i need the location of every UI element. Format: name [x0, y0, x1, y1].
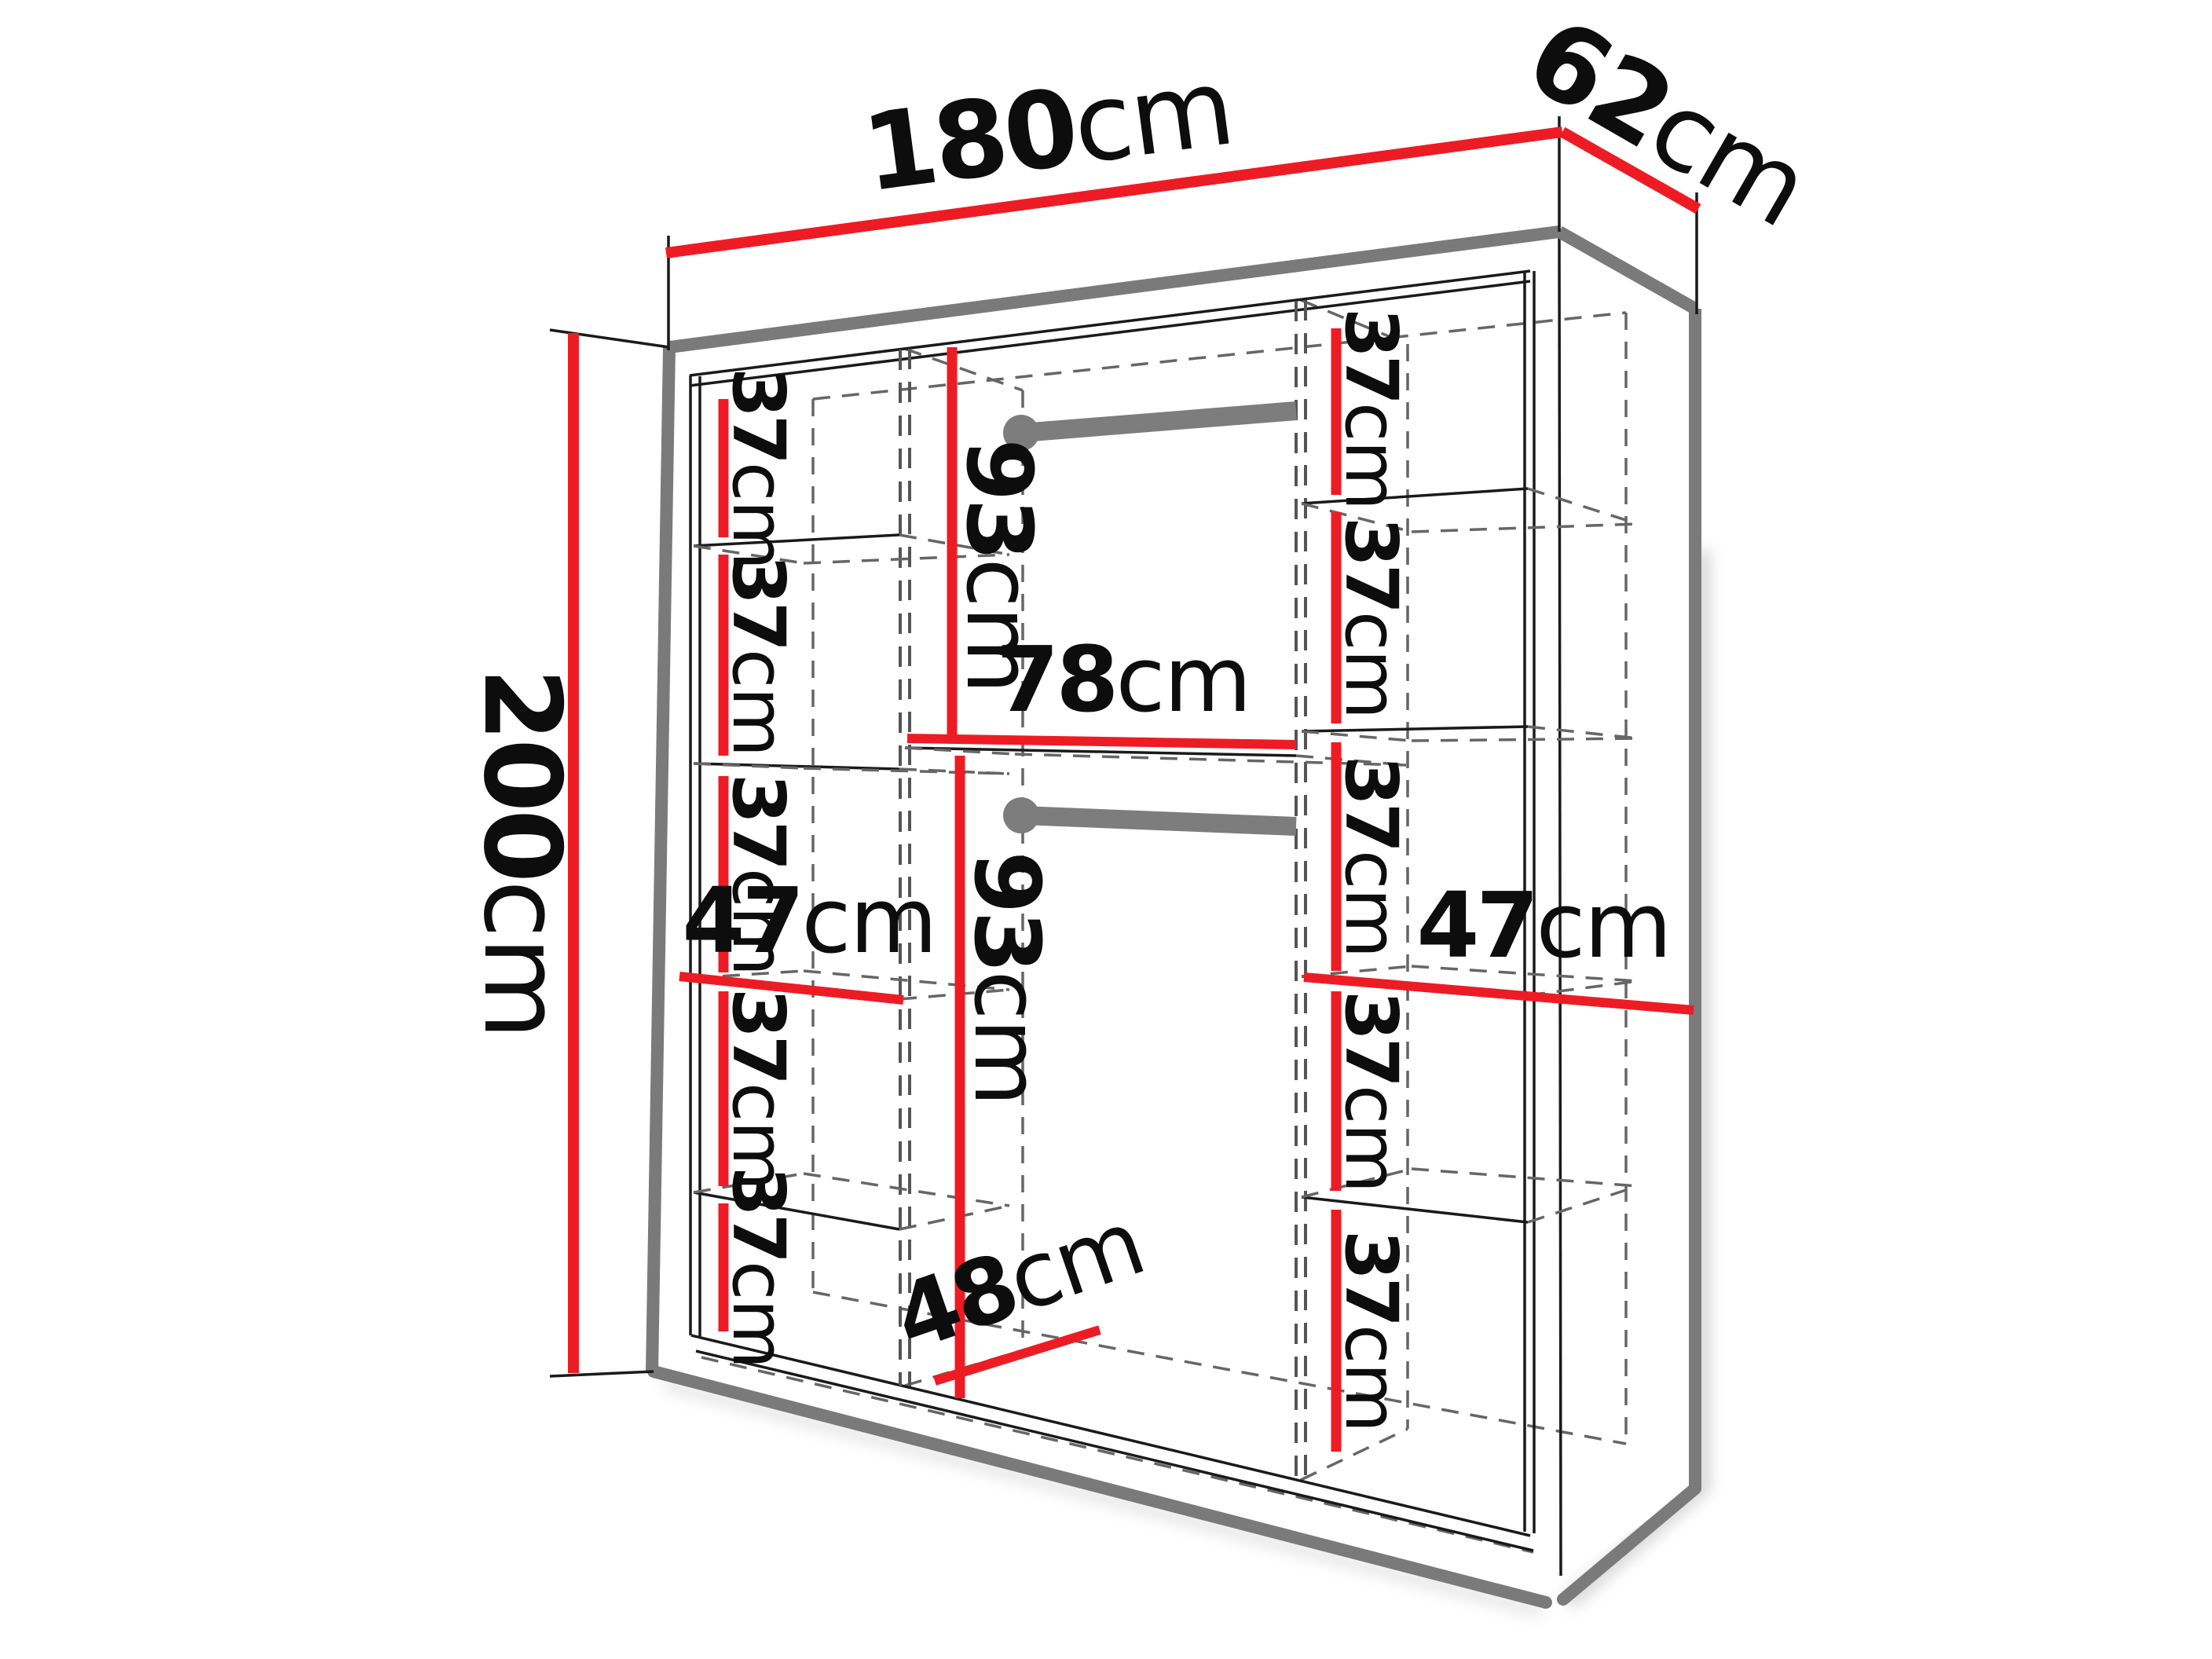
right-gap-label: 37cm	[1329, 517, 1413, 718]
left-gap-label: 37cm	[716, 368, 800, 569]
left-gap-label: 37cm	[716, 555, 800, 756]
wardrobe-dimension-diagram: 180cm 62cm 200cm 37cm 37cm 37cm 37cm 37c…	[0, 0, 2212, 1659]
overall-depth-label: 62cm	[1507, 0, 1829, 251]
right-gap-label: 37cm	[1329, 756, 1413, 957]
left-gap-label: 37cm	[716, 988, 800, 1189]
dim-left-column-gaps: 37cm 37cm 37cm 37cm 37cm	[716, 368, 800, 1368]
dim-overall-height: 200cm	[460, 330, 669, 1376]
dim-right-column-gaps: 37cm 37cm 37cm 37cm 37cm	[1329, 308, 1413, 1452]
overall-width-label: 180cm	[856, 45, 1240, 215]
right-gap-label: 37cm	[1329, 308, 1413, 509]
right-gap-label: 37cm	[1329, 991, 1413, 1192]
left-width-label: 47cm	[682, 869, 936, 974]
diagram-canvas: 180cm 62cm 200cm 37cm 37cm 37cm 37cm 37c…	[0, 0, 2212, 1659]
overall-height-label: 200cm	[460, 668, 584, 1038]
left-gap-label: 37cm	[716, 1166, 800, 1368]
middle-width-label: 78cm	[996, 628, 1250, 733]
right-gap-label: 37cm	[1329, 1230, 1413, 1431]
right-width-label: 47cm	[1416, 873, 1670, 979]
rail-end-cap	[1003, 797, 1039, 833]
middle-lower-label: 93cm	[954, 851, 1059, 1104]
